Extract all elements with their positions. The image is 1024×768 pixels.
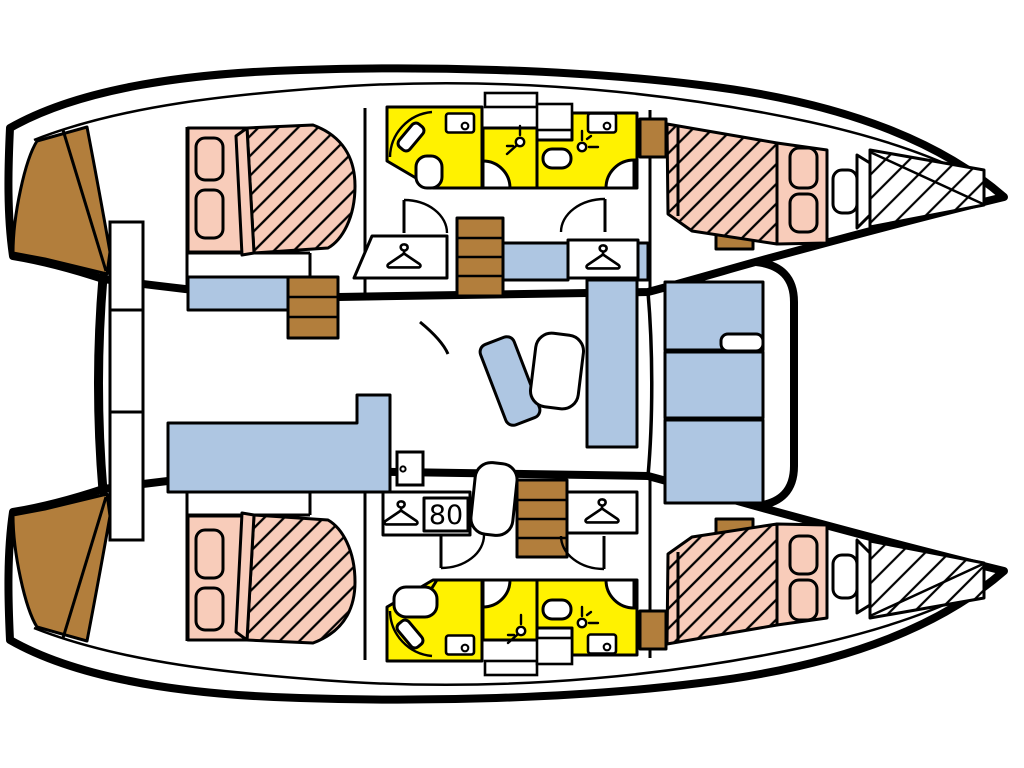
door-knob-icon xyxy=(400,466,405,471)
saloon-hull-steps xyxy=(288,277,338,338)
galley-cabinet-door xyxy=(397,452,423,485)
toilet-icon xyxy=(394,587,437,617)
wardrobe-starboard-forward xyxy=(567,492,637,533)
saloon-sofa xyxy=(168,395,390,492)
galley-counter-aft xyxy=(503,243,568,280)
saloon-chair-fwd xyxy=(529,331,586,410)
bed-pillow xyxy=(790,194,817,232)
wardrobe-starboard-aft: 80 xyxy=(383,492,470,535)
sink-basin-icon xyxy=(588,635,616,654)
bow-locker-starboard xyxy=(870,541,984,618)
companionway-stairs-starboard xyxy=(517,480,567,557)
cabin-step-stbd-fwd xyxy=(640,611,666,649)
companionway-stairs-port xyxy=(457,218,503,296)
wardrobe-width-label: 80 xyxy=(429,500,463,531)
bed-pillow xyxy=(196,138,223,180)
bow-seat-port xyxy=(833,170,857,213)
toilet-icon xyxy=(416,156,442,188)
bed-pillow xyxy=(790,148,817,188)
cabin-step-port-fwd xyxy=(640,119,666,157)
bed-pillow xyxy=(790,536,817,574)
bow-seat-starboard xyxy=(833,555,857,598)
wardrobe-port-aft xyxy=(354,236,447,278)
saloon-chair-aft xyxy=(469,461,518,537)
bed-pillow xyxy=(790,580,817,620)
bed-port-aft xyxy=(188,125,355,255)
bed-pillow xyxy=(196,190,223,238)
bed-pillow xyxy=(196,588,223,630)
sink-basin-icon xyxy=(446,636,474,655)
bow-areas xyxy=(833,150,984,618)
aft-crossbeam xyxy=(99,277,104,491)
floorplan-canvas: 80 xyxy=(0,0,1024,768)
bed-pillow xyxy=(196,530,223,578)
galley-counter-fwd xyxy=(587,280,637,447)
bed-duvet-hatched xyxy=(667,124,777,244)
bed-duvet-hatched xyxy=(247,125,355,253)
bow-trapezoid-starboard xyxy=(857,540,870,613)
forward-cockpit-seats xyxy=(665,282,763,503)
forward-seat-notch xyxy=(721,334,763,351)
saloon-partition-curve xyxy=(420,322,448,354)
bow-locker-port xyxy=(870,150,984,227)
sink-basin-icon xyxy=(446,114,474,133)
aft-cockpit-bench xyxy=(110,222,143,540)
toilet-icon xyxy=(543,149,571,168)
bed-duvet-hatched xyxy=(667,524,777,644)
sink-basin-icon xyxy=(588,114,616,133)
wardrobe-port-forward xyxy=(568,240,638,278)
saloon-forward-bulkhead xyxy=(648,292,652,476)
bed-duvet-hatched xyxy=(247,515,355,643)
saloon-bench-aft-port xyxy=(188,277,288,310)
catamaran-floorplan: 80 xyxy=(0,0,1024,768)
bed-starboard-aft xyxy=(188,513,355,643)
toilet-icon xyxy=(543,600,571,619)
bow-trapezoid-port xyxy=(857,155,870,228)
